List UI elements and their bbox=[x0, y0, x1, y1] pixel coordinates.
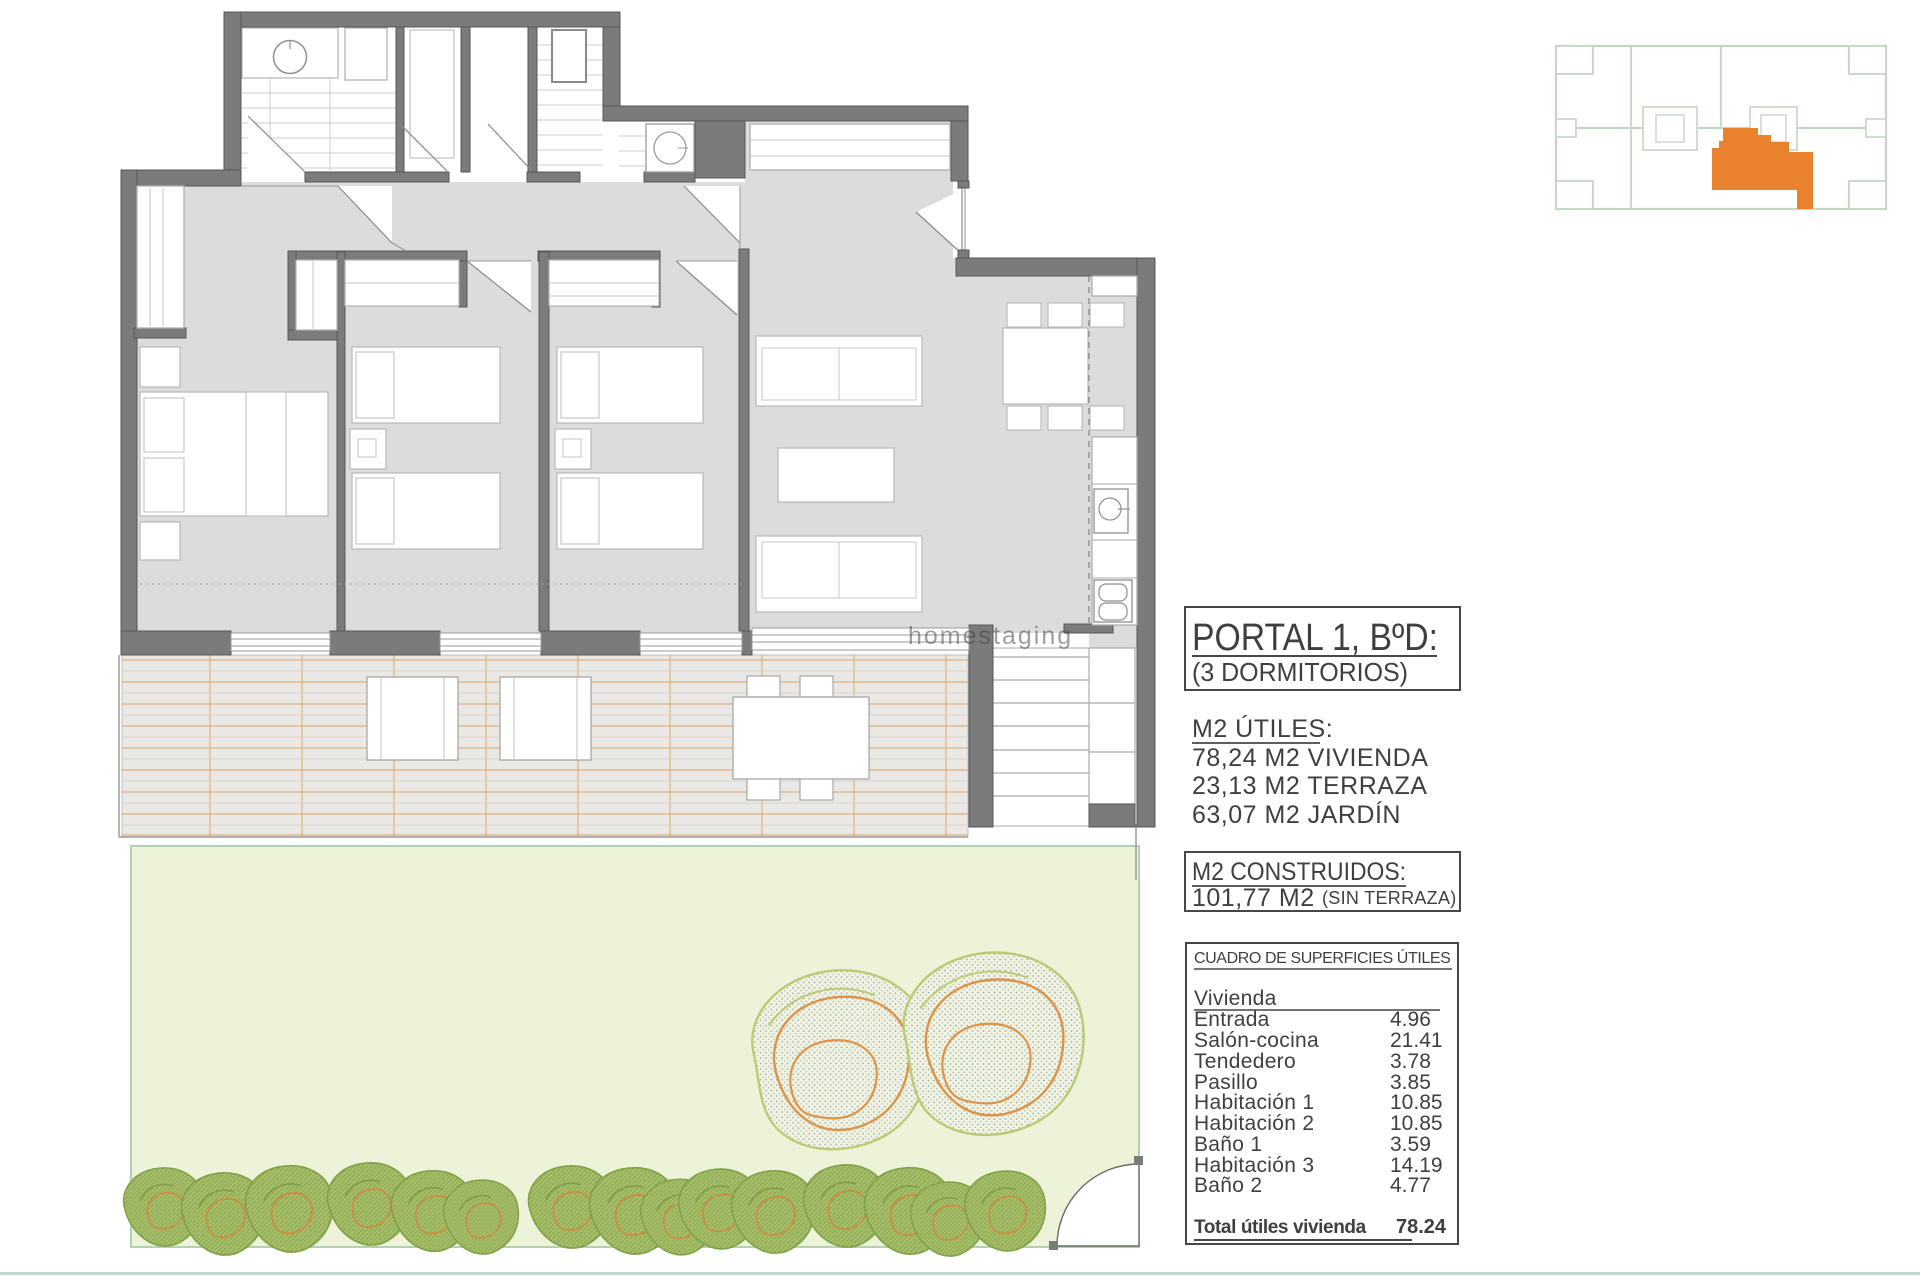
svg-text:Vivienda: Vivienda bbox=[1194, 987, 1277, 1010]
svg-text:10.85: 10.85 bbox=[1390, 1091, 1443, 1114]
svg-text:M2 CONSTRUIDOS:: M2 CONSTRUIDOS: bbox=[1192, 858, 1406, 886]
svg-text:Salón-cocina: Salón-cocina bbox=[1194, 1029, 1319, 1052]
svg-text:Habitación 2: Habitación 2 bbox=[1194, 1112, 1314, 1135]
svg-text:21.41: 21.41 bbox=[1390, 1029, 1443, 1052]
svg-text:3.59: 3.59 bbox=[1390, 1133, 1431, 1156]
svg-text:Baño 1: Baño 1 bbox=[1194, 1133, 1262, 1156]
svg-text:Habitación 1: Habitación 1 bbox=[1194, 1091, 1314, 1114]
svg-text:Tendedero: Tendedero bbox=[1194, 1050, 1296, 1073]
svg-text:CUADRO DE SUPERFICIES ÚTILES: CUADRO DE SUPERFICIES ÚTILES bbox=[1194, 948, 1450, 967]
svg-text:(3 DORMITORIOS): (3 DORMITORIOS) bbox=[1192, 657, 1408, 687]
svg-text:3.78: 3.78 bbox=[1390, 1050, 1431, 1073]
svg-text:Total útiles vivienda: Total útiles vivienda bbox=[1194, 1217, 1367, 1238]
svg-text:(SIN TERRAZA): (SIN TERRAZA) bbox=[1322, 888, 1457, 908]
svg-text:Entrada: Entrada bbox=[1194, 1008, 1270, 1031]
svg-text:4.96: 4.96 bbox=[1390, 1008, 1431, 1031]
svg-text:78,24 M2 VIVIENDA: 78,24 M2 VIVIENDA bbox=[1192, 744, 1428, 772]
svg-text:10.85: 10.85 bbox=[1390, 1112, 1443, 1135]
svg-text:Baño 2: Baño 2 bbox=[1194, 1174, 1262, 1197]
svg-text:63,07 M2 JARDÍN: 63,07 M2 JARDÍN bbox=[1192, 800, 1401, 829]
svg-text:M2 ÚTILES:: M2 ÚTILES: bbox=[1192, 714, 1333, 743]
svg-text:23,13 M2 TERRAZA: 23,13 M2 TERRAZA bbox=[1192, 772, 1427, 800]
svg-text:101,77 M2: 101,77 M2 bbox=[1192, 884, 1315, 912]
svg-text:78.24: 78.24 bbox=[1396, 1216, 1447, 1238]
svg-text:4.77: 4.77 bbox=[1390, 1174, 1431, 1197]
svg-text:homestaging: homestaging bbox=[908, 622, 1073, 650]
svg-text:PORTAL 1, BºD:: PORTAL 1, BºD: bbox=[1192, 617, 1438, 659]
